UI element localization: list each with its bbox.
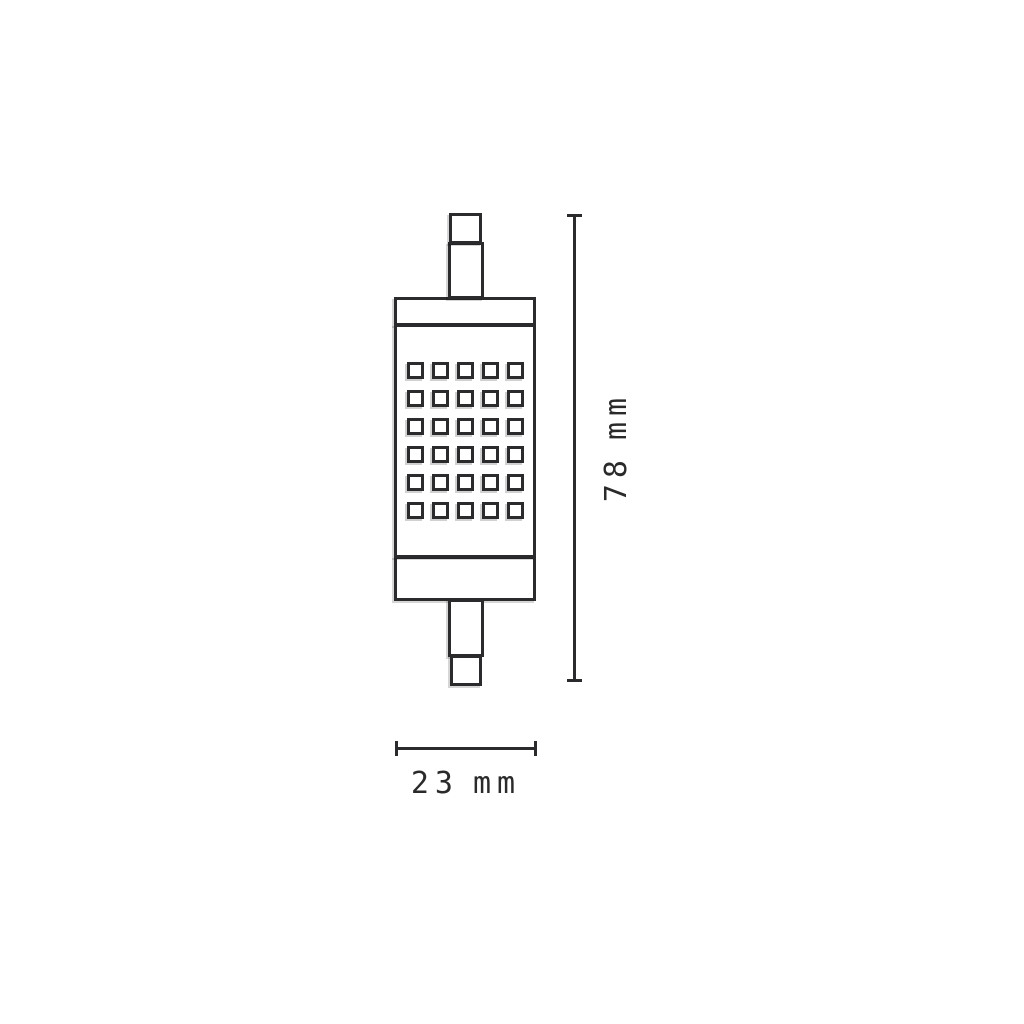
led-chip (432, 362, 449, 379)
led-chip (507, 390, 524, 407)
led-chip (457, 446, 474, 463)
led-chip (407, 446, 424, 463)
lamp-top-contact-tip (449, 213, 482, 244)
led-chip (457, 362, 474, 379)
led-chip (482, 418, 499, 435)
lamp-bottom-end-cap (394, 556, 536, 601)
led-chip (407, 362, 424, 379)
led-chip (482, 446, 499, 463)
width-dimension-tick-left (395, 741, 398, 756)
led-chip (507, 446, 524, 463)
height-unit: mm (602, 392, 632, 440)
led-chip (457, 502, 474, 519)
width-dimension-label: 23 mm (411, 769, 521, 799)
led-chip (507, 362, 524, 379)
width-unit: mm (473, 769, 521, 799)
led-chip (457, 390, 474, 407)
height-dimension-label: 78 mm (602, 392, 632, 502)
led-chip (507, 474, 524, 491)
diagram-canvas: 78 mm 23 mm (0, 0, 1024, 1024)
led-grid (407, 362, 524, 519)
led-chip (457, 474, 474, 491)
led-chip (407, 390, 424, 407)
led-chip (407, 502, 424, 519)
height-dimension-line (573, 215, 576, 682)
height-dimension-tick-bottom (567, 679, 582, 682)
height-value: 78 (602, 454, 632, 502)
led-chip (432, 502, 449, 519)
lamp-top-end-cap (394, 297, 536, 326)
lamp-bottom-contact-tip (450, 655, 482, 686)
width-dimension-tick-right (534, 741, 537, 756)
led-chip (482, 362, 499, 379)
led-chip (457, 418, 474, 435)
led-chip (407, 418, 424, 435)
led-chip (482, 502, 499, 519)
led-chip (432, 474, 449, 491)
led-chip (432, 446, 449, 463)
led-chip (482, 474, 499, 491)
led-chip (432, 390, 449, 407)
led-chip (432, 418, 449, 435)
lamp-top-base-pin (448, 242, 484, 299)
width-dimension-line (396, 747, 537, 750)
led-chip (407, 474, 424, 491)
led-chip (507, 502, 524, 519)
height-dimension-tick-top (567, 214, 582, 217)
led-chip (482, 390, 499, 407)
lamp-bottom-base-pin (448, 599, 484, 657)
width-value: 23 (411, 769, 459, 799)
led-chip (507, 418, 524, 435)
